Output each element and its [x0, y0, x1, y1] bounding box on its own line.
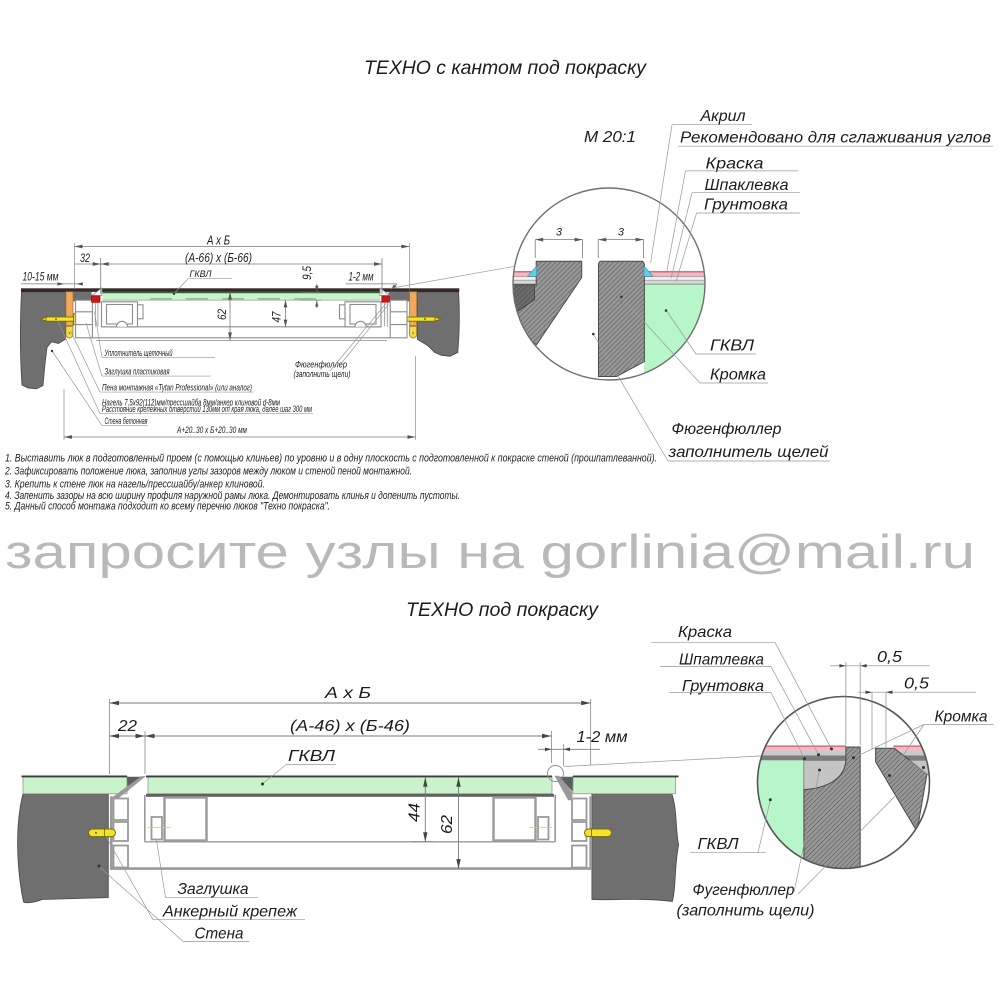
svg-text:62: 62 — [217, 308, 229, 320]
svg-text:Пена монтажная «Tytan Professi: Пена монтажная «Tytan Professional» (или… — [102, 383, 252, 393]
svg-text:1-2 мм: 1-2 мм — [577, 729, 628, 746]
svg-text:ГКВЛ: ГКВЛ — [190, 269, 213, 279]
svg-text:3: 3 — [618, 227, 625, 239]
svg-text:ТЕХНО с кантом под покраску: ТЕХНО с кантом под покраску — [364, 57, 647, 79]
svg-text:Краска: Краска — [706, 156, 764, 173]
svg-text:Фюгенфюллер: Фюгенфюллер — [295, 360, 347, 370]
svg-text:0,5: 0,5 — [877, 649, 902, 666]
svg-text:2. Зафиксировать положение люк: 2. Зафиксировать положение люка, заполни… — [4, 466, 412, 478]
svg-text:ГКВЛ: ГКВЛ — [288, 748, 335, 765]
svg-text:10-15 мм: 10-15 мм — [23, 272, 59, 284]
svg-text:22: 22 — [117, 718, 137, 735]
svg-text:1. Выставить люк в подготовлен: 1. Выставить люк в подготовленный проем … — [5, 452, 657, 464]
svg-text:(заполнить щели): (заполнить щели) — [677, 903, 815, 920]
svg-text:Фугенфюллер: Фугенфюллер — [693, 882, 795, 899]
svg-text:(А-66) х (Б-66): (А-66) х (Б-66) — [185, 251, 252, 265]
svg-text:Кромка: Кромка — [710, 367, 766, 384]
svg-text:47: 47 — [272, 311, 284, 323]
svg-text:Краска: Краска — [678, 624, 732, 641]
svg-text:Уплотнитель щеточный: Уплотнитель щеточный — [104, 348, 173, 358]
svg-text:А+20..30 х Б+20..30 мм: А+20..30 х Б+20..30 мм — [176, 425, 247, 435]
svg-text:Шпаклевка: Шпаклевка — [705, 177, 789, 194]
svg-text:(А-46) х (Б-46): (А-46) х (Б-46) — [290, 718, 410, 735]
svg-text:Акрил: Акрил — [699, 108, 745, 125]
svg-text:Заглушка пластиковая: Заглушка пластиковая — [105, 367, 170, 377]
svg-text:ГКВЛ: ГКВЛ — [710, 338, 754, 355]
svg-text:Грунтовка: Грунтовка — [704, 197, 788, 214]
svg-text:0,5: 0,5 — [904, 676, 929, 693]
svg-text:Рекомендовано для сглаживания: Рекомендовано для сглаживания углов — [680, 130, 991, 147]
svg-text:44: 44 — [407, 803, 424, 822]
svg-text:3: 3 — [556, 227, 563, 239]
svg-text:(заполнить щели): (заполнить щели) — [294, 369, 351, 379]
svg-text:1-2 мм: 1-2 мм — [349, 272, 374, 284]
svg-text:5. Данный способ монтажа подхо: 5. Данный способ монтажа подходит ко все… — [5, 500, 330, 512]
svg-text:М 20:1: М 20:1 — [584, 129, 636, 146]
svg-text:Кромка: Кромка — [935, 709, 988, 726]
svg-text:А х Б: А х Б — [324, 685, 371, 702]
svg-text:запросите узлы на gorlinia@mai: запросите узлы на gorlinia@mail.ru — [5, 525, 975, 578]
svg-text:Заглушка: Заглушка — [178, 881, 249, 898]
svg-text:9,5: 9,5 — [302, 265, 314, 280]
svg-text:ГКВЛ: ГКВЛ — [698, 836, 739, 853]
svg-text:А х Б: А х Б — [206, 234, 230, 248]
svg-text:3. Крепить к стене люк на наге: 3. Крепить к стене люк на нагель/прессша… — [5, 479, 265, 491]
svg-text:32: 32 — [80, 251, 90, 265]
svg-text:Стена: Стена — [195, 926, 244, 943]
svg-text:ТЕХНО под покраску: ТЕХНО под покраску — [406, 599, 599, 621]
svg-text:Стена бетонная: Стена бетонная — [105, 416, 148, 426]
svg-text:Расстояние крепежных отверстий: Расстояние крепежных отверстий 130мм от … — [102, 404, 312, 414]
svg-text:62: 62 — [439, 815, 456, 834]
svg-text:Анкерный крепеж: Анкерный крепеж — [162, 904, 298, 921]
svg-text:Фюгенфюллер: Фюгенфюллер — [672, 421, 782, 438]
svg-text:Шпатлевка: Шпатлевка — [679, 652, 764, 669]
svg-text:заполнитель щелей: заполнитель щелей — [667, 444, 828, 461]
